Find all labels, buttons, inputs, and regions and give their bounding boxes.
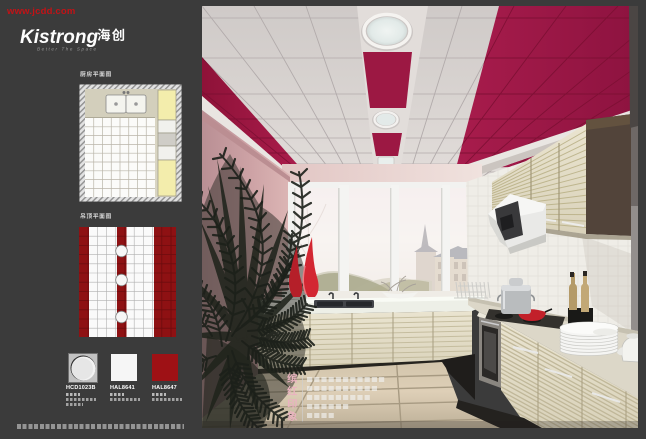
svg-text:Better The Space: Better The Space xyxy=(37,47,98,52)
svg-text:Kistrong: Kistrong xyxy=(20,27,99,48)
